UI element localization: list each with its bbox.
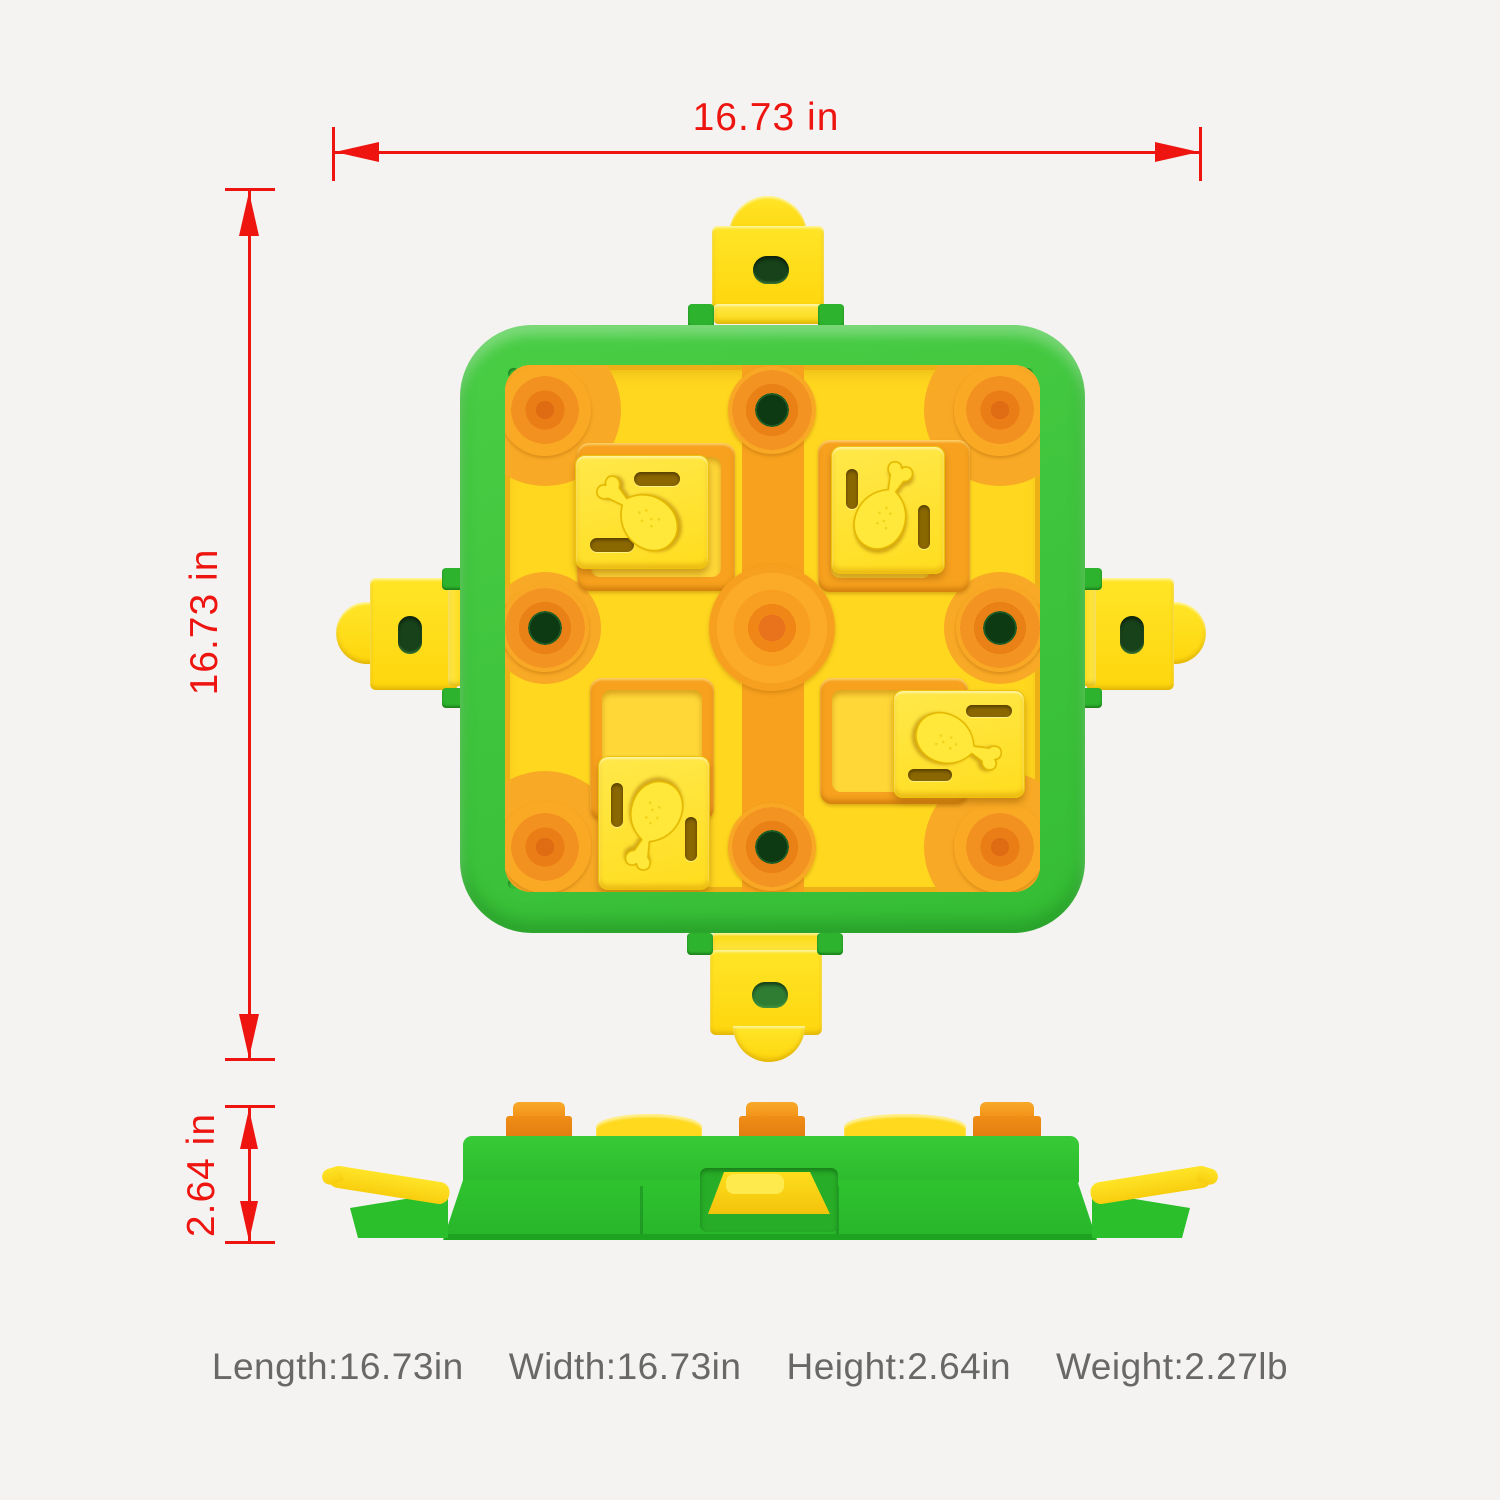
- slider-block-top-right[interactable]: [831, 446, 945, 574]
- clip-slot: [398, 616, 422, 654]
- width-tick-right: [1199, 127, 1202, 181]
- height-arrowhead-top-icon: [240, 1109, 258, 1149]
- spec-height: Height:2.64in: [786, 1346, 1011, 1388]
- clip-dome: [733, 1026, 805, 1062]
- base-bottom-edge: [444, 1234, 1096, 1240]
- treat-hole[interactable]: [505, 584, 589, 672]
- product-dimension-diagram: 16.73 in 16.73 in 2.64 in: [0, 0, 1500, 1500]
- spec-line: Length:16.73in Width:16.73in Height:2.64…: [0, 1346, 1500, 1388]
- length-dimension-label: 16.73 in: [183, 527, 227, 717]
- food-bowl: [954, 365, 1040, 456]
- length-tick-bottom: [225, 1058, 275, 1061]
- clip-slot: [1120, 616, 1144, 654]
- puzzle-board: [505, 365, 1040, 892]
- side-latch-top: [726, 1174, 784, 1194]
- width-tick-left: [332, 127, 335, 181]
- clip-foot: [714, 304, 822, 324]
- block-slot: [918, 505, 930, 549]
- length-tick-top: [225, 188, 275, 191]
- clip-slot: [752, 982, 788, 1008]
- spec-weight: Weight:2.27lb: [1056, 1346, 1288, 1388]
- folded-clip-left: [327, 1165, 451, 1206]
- treat-hole[interactable]: [728, 803, 816, 891]
- food-bowl: [505, 801, 591, 892]
- width-arrowhead-right-icon: [1155, 142, 1199, 162]
- center-bowl: [709, 565, 835, 691]
- folded-clip-right: [1089, 1165, 1213, 1206]
- width-arrowhead-left-icon: [335, 142, 379, 162]
- width-dimension-line: [333, 151, 1201, 154]
- treat-hole[interactable]: [728, 366, 816, 454]
- clip-hinge: [687, 933, 713, 955]
- height-tick-top: [225, 1105, 275, 1108]
- drumstick-icon: [578, 455, 700, 573]
- spec-width: Width:16.73in: [509, 1346, 742, 1388]
- height-dimension-label: 2.64 in: [180, 1085, 224, 1265]
- clip-slot: [753, 256, 789, 284]
- height-arrowhead-bottom-icon: [240, 1201, 258, 1241]
- base-seam: [640, 1186, 643, 1236]
- length-arrowhead-top-icon: [239, 192, 259, 236]
- clip-hinge: [817, 933, 843, 955]
- length-arrowhead-bottom-icon: [239, 1014, 259, 1058]
- spec-length: Length:16.73in: [212, 1346, 464, 1388]
- slider-block-top-left[interactable]: [575, 455, 709, 569]
- height-tick-bottom: [225, 1241, 275, 1244]
- slider-block-bottom-right[interactable]: [893, 690, 1025, 798]
- food-bowl: [954, 801, 1040, 892]
- treat-hole[interactable]: [956, 584, 1040, 672]
- slider-block-bottom-left[interactable]: [598, 756, 710, 890]
- width-dimension-label: 16.73 in: [640, 96, 892, 140]
- drumstick-icon: [836, 450, 934, 566]
- length-dimension-line: [248, 190, 251, 1060]
